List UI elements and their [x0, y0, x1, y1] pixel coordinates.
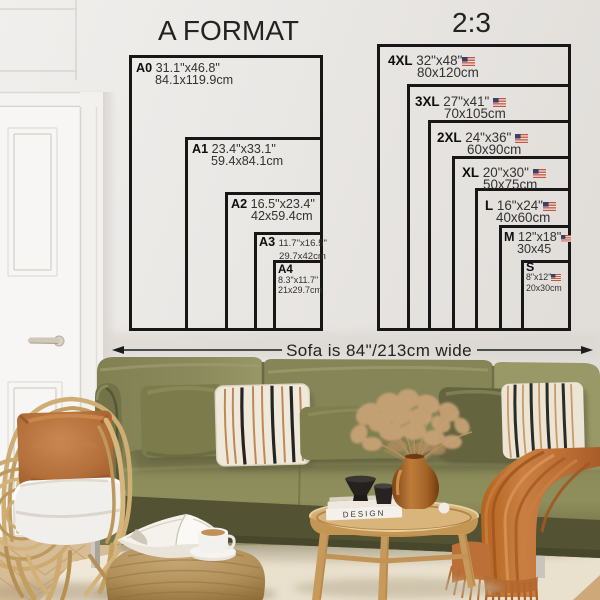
svg-text:Sofa is 84"/213cm wide: Sofa is 84"/213cm wide [286, 341, 472, 360]
